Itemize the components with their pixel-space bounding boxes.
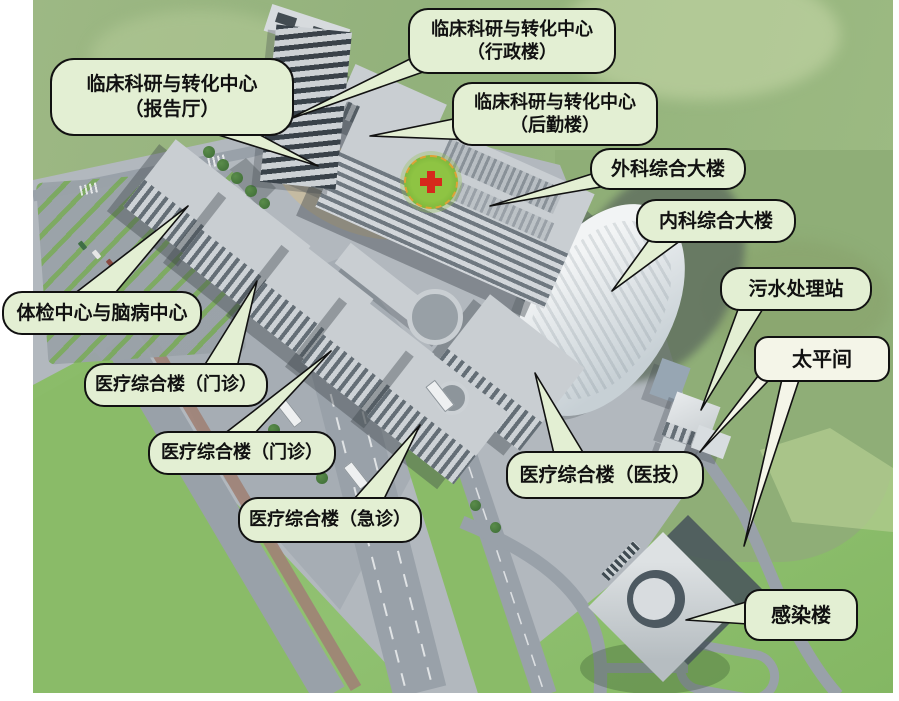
callout-med-tech-text: 医疗综合楼（医技） — [519, 463, 690, 488]
callout-infection-text: 感染楼 — [771, 602, 831, 628]
callout-logistics-line1: 临床科研与转化中心 — [474, 91, 636, 114]
callout-emergency: 医疗综合楼（急诊） — [238, 497, 422, 543]
callout-admin: 临床科研与转化中心 （行政楼） — [408, 8, 616, 74]
callout-med-tech: 医疗综合楼（医技） — [506, 451, 704, 499]
callout-admin-line2: （行政楼） — [467, 41, 557, 64]
callout-outpatient-2-text: 医疗综合楼（门诊） — [161, 441, 323, 464]
callout-surgery: 外科综合大楼 — [590, 148, 746, 190]
callout-lecture-hall: 临床科研与转化中心 （报告厅） — [50, 58, 294, 136]
callout-sewage: 污水处理站 — [720, 267, 872, 311]
callout-internal-medicine-text: 内科综合大楼 — [659, 209, 773, 234]
callout-outpatient-1: 医疗综合楼（门诊） — [84, 363, 268, 407]
hospital-campus-rendering: 临床科研与转化中心 （行政楼） 临床科研与转化中心 （报告厅） 临床科研与转化中… — [0, 0, 899, 701]
callout-checkup-text: 体检中心与脑病中心 — [16, 301, 187, 326]
callout-checkup: 体检中心与脑病中心 — [2, 291, 202, 335]
callout-morgue: 太平间 — [754, 336, 890, 382]
callout-admin-line1: 临床科研与转化中心 — [431, 18, 593, 41]
callout-logistics: 临床科研与转化中心 （后勤楼） — [452, 82, 658, 146]
callout-surgery-text: 外科综合大楼 — [611, 157, 725, 182]
callout-logistics-line2: （后勤楼） — [510, 114, 600, 137]
callout-lecture-line2: （报告厅） — [124, 97, 219, 122]
callout-morgue-text: 太平间 — [792, 346, 852, 372]
callout-infection: 感染楼 — [744, 589, 858, 641]
callout-sewage-text: 污水处理站 — [748, 277, 843, 302]
callout-outpatient-1-text: 医疗综合楼（门诊） — [95, 373, 257, 396]
callout-internal-medicine: 内科综合大楼 — [636, 199, 796, 243]
callout-outpatient-2: 医疗综合楼（门诊） — [148, 431, 336, 475]
callout-lecture-line1: 临床科研与转化中心 — [86, 72, 257, 97]
callout-emergency-text: 医疗综合楼（急诊） — [249, 508, 411, 531]
